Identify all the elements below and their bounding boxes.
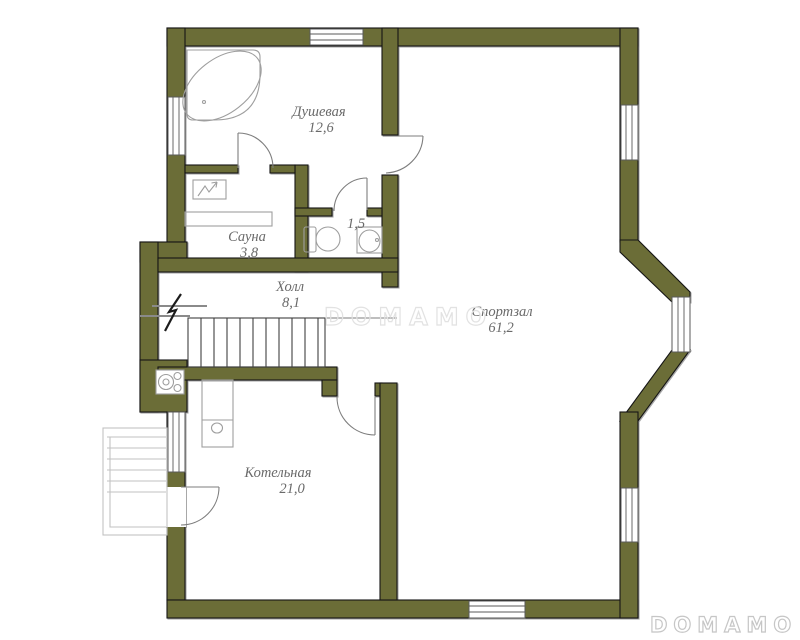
stove-unit (156, 370, 184, 394)
wall-bay-lower-diagonal (620, 350, 690, 421)
wall-hall-top (158, 258, 398, 272)
window-bottom (469, 601, 525, 618)
window-right-bottom (621, 488, 638, 542)
room-area-boiler: 21,0 (279, 481, 305, 497)
entrance-opening (165, 487, 186, 527)
wall-top (167, 28, 638, 46)
window-right-top (621, 105, 638, 160)
room-label-hall: Холл (275, 279, 304, 295)
wall-wc-top-left (295, 208, 332, 216)
window-bay (672, 297, 690, 352)
wall-wc-top-right (367, 208, 382, 216)
sauna-heater (193, 180, 226, 199)
toilet (304, 227, 340, 252)
window-top (310, 29, 363, 45)
wall-bottom (167, 600, 638, 618)
room-area-hall: 8,1 (282, 295, 300, 311)
floor-plan-page: Душевая 12,6 Сауна 3,8 1,5 Холл 8,1 Спор… (0, 0, 800, 640)
door-entrance (181, 487, 219, 525)
room-label-shower: Душевая (290, 104, 345, 120)
wall-hall-bottom (158, 367, 337, 380)
room-label-boiler: Котельная (244, 465, 312, 481)
wall-sauna-top-left (185, 165, 238, 173)
door-wc (334, 178, 367, 211)
watermark-center: DOMAMO (324, 303, 493, 331)
door-shower (383, 136, 423, 173)
sauna-bench (185, 212, 272, 226)
wall-bay-upper-diagonal (620, 240, 690, 302)
wall-sauna-top-right (270, 165, 295, 173)
wall-shower-east (382, 28, 398, 135)
room-area-wc: 1,5 (347, 216, 365, 232)
floor-plan-canvas: Душевая 12,6 Сауна 3,8 1,5 Холл 8,1 Спор… (0, 0, 800, 640)
room-area-sauna: 3,8 (239, 245, 259, 261)
watermark-corner: DOMAMO (650, 613, 797, 637)
wall-sauna-east (295, 165, 308, 272)
door-sauna (238, 133, 273, 168)
room-label-sauna: Сауна (228, 229, 266, 245)
porch-steps (103, 428, 167, 535)
room-area-shower: 12,6 (308, 120, 334, 136)
wall-door-jamb-left (322, 380, 337, 396)
boiler-unit (202, 380, 233, 447)
wall-boiler-east (380, 383, 397, 600)
window-boiler-left (168, 412, 185, 472)
door-boiler-room (337, 397, 375, 435)
